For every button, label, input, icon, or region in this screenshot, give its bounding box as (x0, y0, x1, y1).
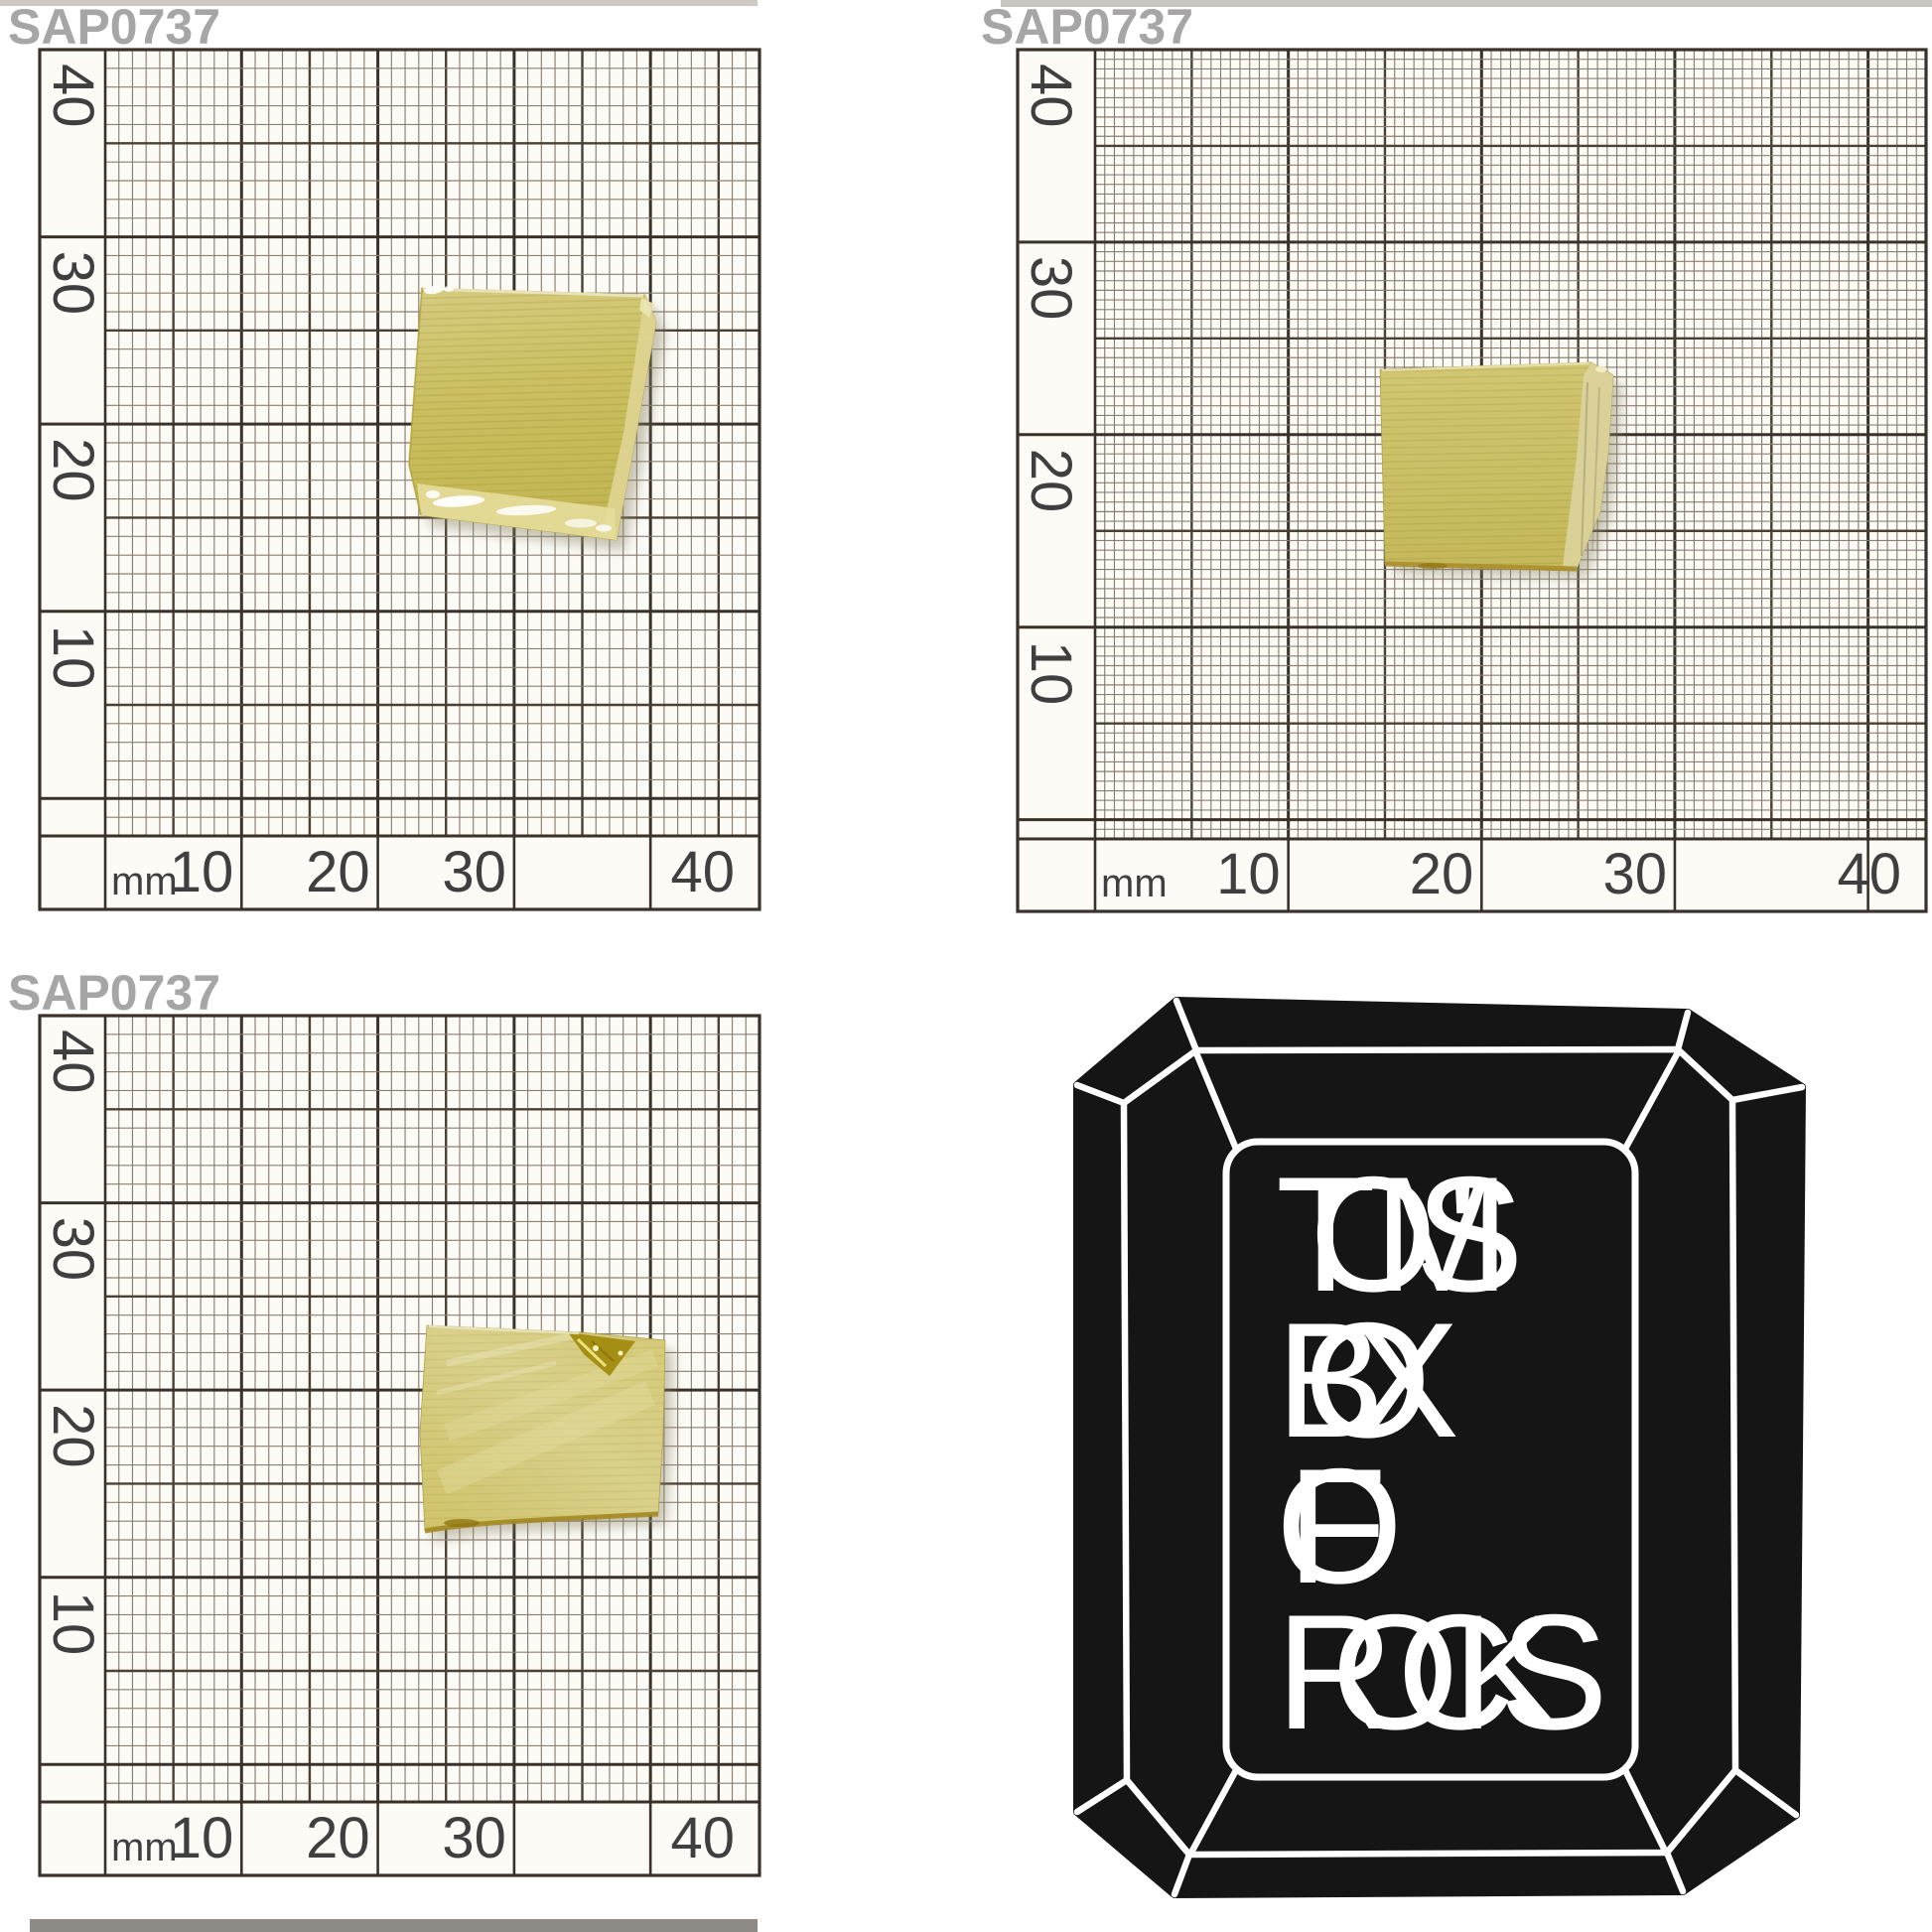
photo-card-front-view: 1020304040302010mm SAP0737 (0, 966, 966, 1932)
specimen-stone (1380, 362, 1622, 579)
y-axis-tick-label: 20 (1019, 449, 1083, 513)
y-axis-tick-label: 30 (41, 1217, 105, 1282)
photo-card-top-view: 1020304040302010mm SAP0737 (0, 0, 966, 966)
unit-label: mm (111, 1826, 178, 1869)
x-axis-tick-label: 30 (442, 840, 506, 904)
y-axis-tick-label: 10 (41, 625, 105, 690)
specimen-id-label: SAP0737 (981, 0, 1193, 55)
ruler-card-side: 1020304040302010mm SAP0737 (966, 0, 1932, 966)
x-axis-tick-label: 40 (670, 840, 735, 904)
y-axis-tick-label: 30 (1019, 256, 1083, 321)
y-axis-tick-label: 40 (1019, 64, 1083, 128)
logo-gem: TOM'S BOX OF ROCKS (966, 966, 1932, 1932)
unit-label: mm (111, 860, 178, 903)
x-axis-tick-label: 10 (1216, 842, 1281, 906)
y-axis-tick-label: 20 (41, 1404, 105, 1468)
specimen-id-label: SAP0737 (8, 966, 220, 1021)
photo-card-side-view: 1020304040302010mm SAP0737 (966, 0, 1932, 966)
x-axis-tick-label: 20 (1410, 842, 1474, 906)
ruler-card-front: 1020304040302010mm SAP0737 (0, 966, 966, 1932)
y-axis-tick-label: 10 (1019, 641, 1083, 706)
x-axis-tick-label: 30 (442, 1806, 506, 1870)
x-axis-tick-label: 40 (670, 1806, 735, 1870)
specimen-stone (409, 285, 665, 551)
toms-box-of-rocks-logo: TOM'S BOX OF ROCKS (966, 966, 1932, 1932)
x-axis-tick-label: 10 (170, 1806, 234, 1870)
x-axis-tick-label: 20 (306, 840, 370, 904)
specimen-stone (420, 1325, 673, 1541)
specimen-id-label: SAP0737 (8, 0, 220, 55)
ruler-card-top: 1020304040302010mm SAP0737 (0, 0, 966, 966)
x-axis-tick-label: 40 (1837, 842, 1901, 906)
x-axis-tick-label: 10 (170, 840, 234, 904)
y-axis-tick-label: 20 (41, 438, 105, 502)
unit-label: mm (1101, 862, 1168, 905)
logo-text-line: ROCKS (1276, 1581, 1608, 1763)
y-axis-tick-label: 30 (41, 251, 105, 316)
y-axis-tick-label: 40 (41, 1030, 105, 1094)
x-axis-tick-label: 30 (1602, 842, 1667, 906)
x-axis-tick-label: 20 (306, 1806, 370, 1870)
y-axis-tick-label: 40 (41, 64, 105, 128)
specimen-photo-collage: 1020304040302010mm SAP0737 (0, 0, 1932, 1932)
y-axis-tick-label: 10 (41, 1591, 105, 1656)
